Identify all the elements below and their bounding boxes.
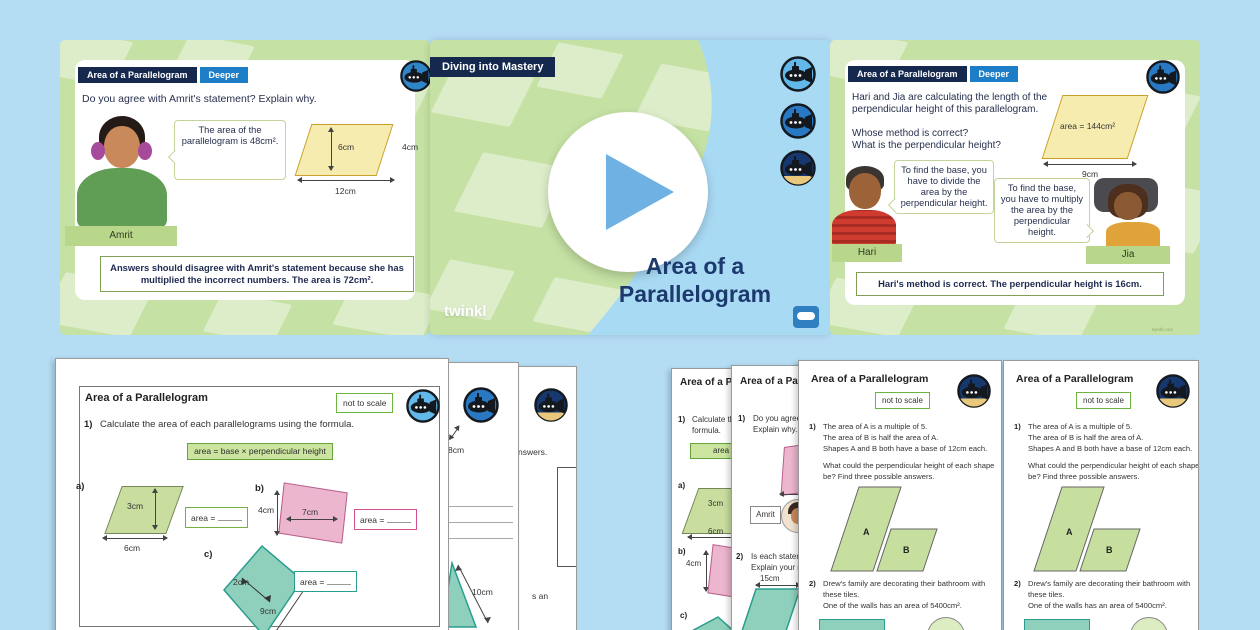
torso [832,210,896,248]
height-label: 2cm [233,577,249,587]
question-number: 2) [736,552,743,561]
dimension-label: 15cm [760,574,780,583]
height-label: 4cm [258,505,274,515]
dimension-arrow [756,585,800,586]
submarine-icon-medium [780,103,816,139]
speech-bubble: The area of the parallelogram is 48cm². [174,120,286,180]
height-arrow [706,551,707,591]
prompt-line-2: perpendicular height of this parallelogr… [852,104,1038,116]
question-line: be? Find three possible answers. [1028,472,1139,481]
side-label: 4cm [402,142,418,152]
badge-cloud-icon [797,312,815,320]
question-line: The area of B is half the area of A. [823,433,938,442]
clipped-text: s an [532,591,548,601]
submarine-icon-light [780,56,816,92]
parallelogram-figure: area = 144cm² [1042,95,1146,159]
title-line-1: Area of a [580,252,810,280]
width-label: 7cm [302,507,318,517]
clipped-text: Explain your re [751,563,804,572]
item-label: a) [76,481,84,492]
base-arrow [1044,164,1136,165]
submarine-icon [463,387,499,423]
question-line: What could the perpendicular height of e… [823,461,994,470]
resource-preview: Area of a Parallelogram Deeper Do you ag… [0,0,1260,630]
height-label: 3cm [127,501,143,511]
slide-left: Area of a Parallelogram Deeper Do you ag… [60,40,430,335]
question-line: One of the walls has an area of 5400cm². [1028,601,1167,610]
submarine-icon [534,388,568,422]
character-amrit [75,116,169,228]
shapes-a-b-figure: A B [1032,485,1172,575]
slide-title-tab: Area of a Parallelogram [848,66,967,82]
character-jia [1086,178,1176,246]
answer-blank [387,514,411,523]
submarine-icon [1146,60,1180,94]
shape-b-label: B [1106,545,1113,555]
slide-main-title: Area of a Parallelogram [580,252,810,308]
worksheet-page-front: Area of a Parallelogram not to scale 1) … [55,358,449,630]
slide-prompt: Do you agree with Amrit's statement? Exp… [82,93,317,105]
area-label: area = [191,513,215,523]
difficulty-badge: Deeper [970,66,1019,82]
area-answer-box[interactable]: area = [354,509,417,530]
prompt-line-1: Hari and Jia are calculating the length … [852,92,1047,104]
question-line: The area of A is a multiple of 5. [1028,422,1132,431]
name-tag-amrit: Amrit [65,226,177,246]
twinkl-logo: twinkl [444,306,487,318]
question-line: The area of A is a multiple of 5. [823,422,927,431]
question-number: 1) [1014,422,1021,431]
name-tag-amrit: Amrit [750,506,781,524]
question-number: 1) [84,419,92,430]
question-text: Calculate the area of each parallelogram… [100,419,354,430]
shape-teal [740,587,802,630]
worksheet-title: Area of a Parallelogram [1016,373,1133,385]
question-line: What could the perpendicular height of e… [1028,461,1199,470]
answer-box: Hari's method is correct. The perpendicu… [856,272,1164,296]
question-line: these tiles. [823,590,859,599]
question-line: these tiles. [1028,590,1064,599]
height-label: 3cm [708,499,723,508]
question-number: 1) [738,414,745,423]
not-to-scale-box: not to scale [1076,392,1131,409]
question-number: 2) [809,579,816,588]
question-line: Drew's family are decorating their bathr… [1028,579,1190,588]
base-label: 12cm [335,186,356,196]
question-line: Shapes A and B both have a base of 12cm … [1028,444,1192,453]
area-label: area = [300,577,324,587]
item-label: b) [678,547,686,556]
base-label: 9cm [260,606,276,616]
banner: Diving into Mastery [430,57,555,77]
tile-figure [819,619,885,630]
dimension-label: 8cm [448,445,464,455]
avatar [927,617,965,630]
item-label: b) [255,483,264,494]
submarine-icon [400,60,430,92]
worksheet-title: Area of a Pa [680,377,738,388]
play-button[interactable] [548,112,708,272]
dimension-label: 10cm [472,587,493,597]
question-1: Whose method is correct? [852,128,968,140]
submarine-icon [406,389,440,423]
question-2: What is the perpendicular height? [852,140,1001,152]
slide-title-tab: Area of a Parallelogram [78,67,197,83]
name-tag-jia: Jia [1086,246,1170,264]
question-line: be? Find three possible answers. [823,472,934,481]
height-arrow [277,491,278,535]
base-label: 6cm [124,543,140,553]
shape-a-label: A [1066,527,1073,537]
question-number: 1) [809,422,816,431]
question-line: The area of B is half the area of A. [1028,433,1143,442]
area-label: area = [360,515,384,525]
face [104,126,140,168]
answer-blank [327,576,351,585]
torso [77,168,167,228]
submarine-icon [1156,374,1190,408]
difficulty-badge: Deeper [200,67,249,83]
shape-a-label: A [863,527,870,537]
avatar [1130,617,1168,630]
question-line: Shapes A and B both have a base of 12cm … [823,444,987,453]
torso [1106,222,1160,246]
parallelogram-figure: 6cm [293,124,397,176]
submarine-icon-dark [780,150,816,186]
worksheet-title: Area of a Parallelogram [85,392,208,404]
formula-box: area = base × perpendicular height [187,443,333,460]
not-to-scale-box: not to scale [336,393,393,413]
name-tag-hari: Hari [832,244,902,262]
height-label: 4cm [686,559,701,568]
speech-bubble-hari: To find the base, you have to divide the… [894,160,994,214]
twinkl-badge [793,306,819,328]
clipped-text: nswers. [518,447,547,457]
worksheet-deep-page-1: Area of a Parallelogram not to scale 1) … [798,360,1002,630]
slide-center: Diving into Mastery [430,40,830,335]
worksheet-deep-page-2: Area of a Parallelogram not to scale 1) … [1003,360,1199,630]
speech-bubble-jia: To find the base, you have to multiply t… [994,178,1090,243]
base-arrow [103,538,167,539]
not-to-scale-box: not to scale [875,392,930,409]
height-arrow [331,128,332,170]
clipped-text: formula. [692,426,721,435]
slide-right: Area of a Parallelogram Deeper Hari and … [830,40,1200,335]
base-arrow [298,180,394,181]
clipped-text: Explain why. [753,425,797,434]
width-arrow [287,519,337,520]
question-line: Drew's family are decorating their bathr… [823,579,985,588]
answer-box: Answers should disagree with Amrit's sta… [100,256,414,292]
height-arrow [155,489,156,529]
worksheet-title: Area of a Parallelogram [811,373,928,385]
answer-area-box [557,467,577,567]
item-label: c) [204,549,212,560]
question-number: 2) [1014,579,1021,588]
headphone-left [91,142,105,160]
watermark: twinkl.com [1152,324,1173,335]
tile-figure [1024,619,1090,630]
shapes-a-b-figure: A B [829,485,969,575]
dimension-arrow [450,426,460,440]
clipped-text: Calculate th [692,415,734,424]
question-number: 1) [678,415,685,424]
height-label: 6cm [338,142,354,152]
item-label: a) [678,481,685,490]
face [1114,192,1142,220]
character-hari [832,166,898,248]
area-answer-box[interactable]: area = [294,571,357,592]
title-line-2: Parallelogram [580,280,810,308]
submarine-icon [957,374,991,408]
headphone-right [138,142,152,160]
question-line: One of the walls has an area of 5400cm². [823,601,962,610]
play-icon [548,112,708,272]
shape-b-label: B [903,545,910,555]
face [849,173,881,209]
area-label: area = 144cm² [1060,121,1115,131]
base-label: 6cm [708,527,723,536]
answer-blank [218,512,242,521]
area-answer-box[interactable]: area = [185,507,248,528]
